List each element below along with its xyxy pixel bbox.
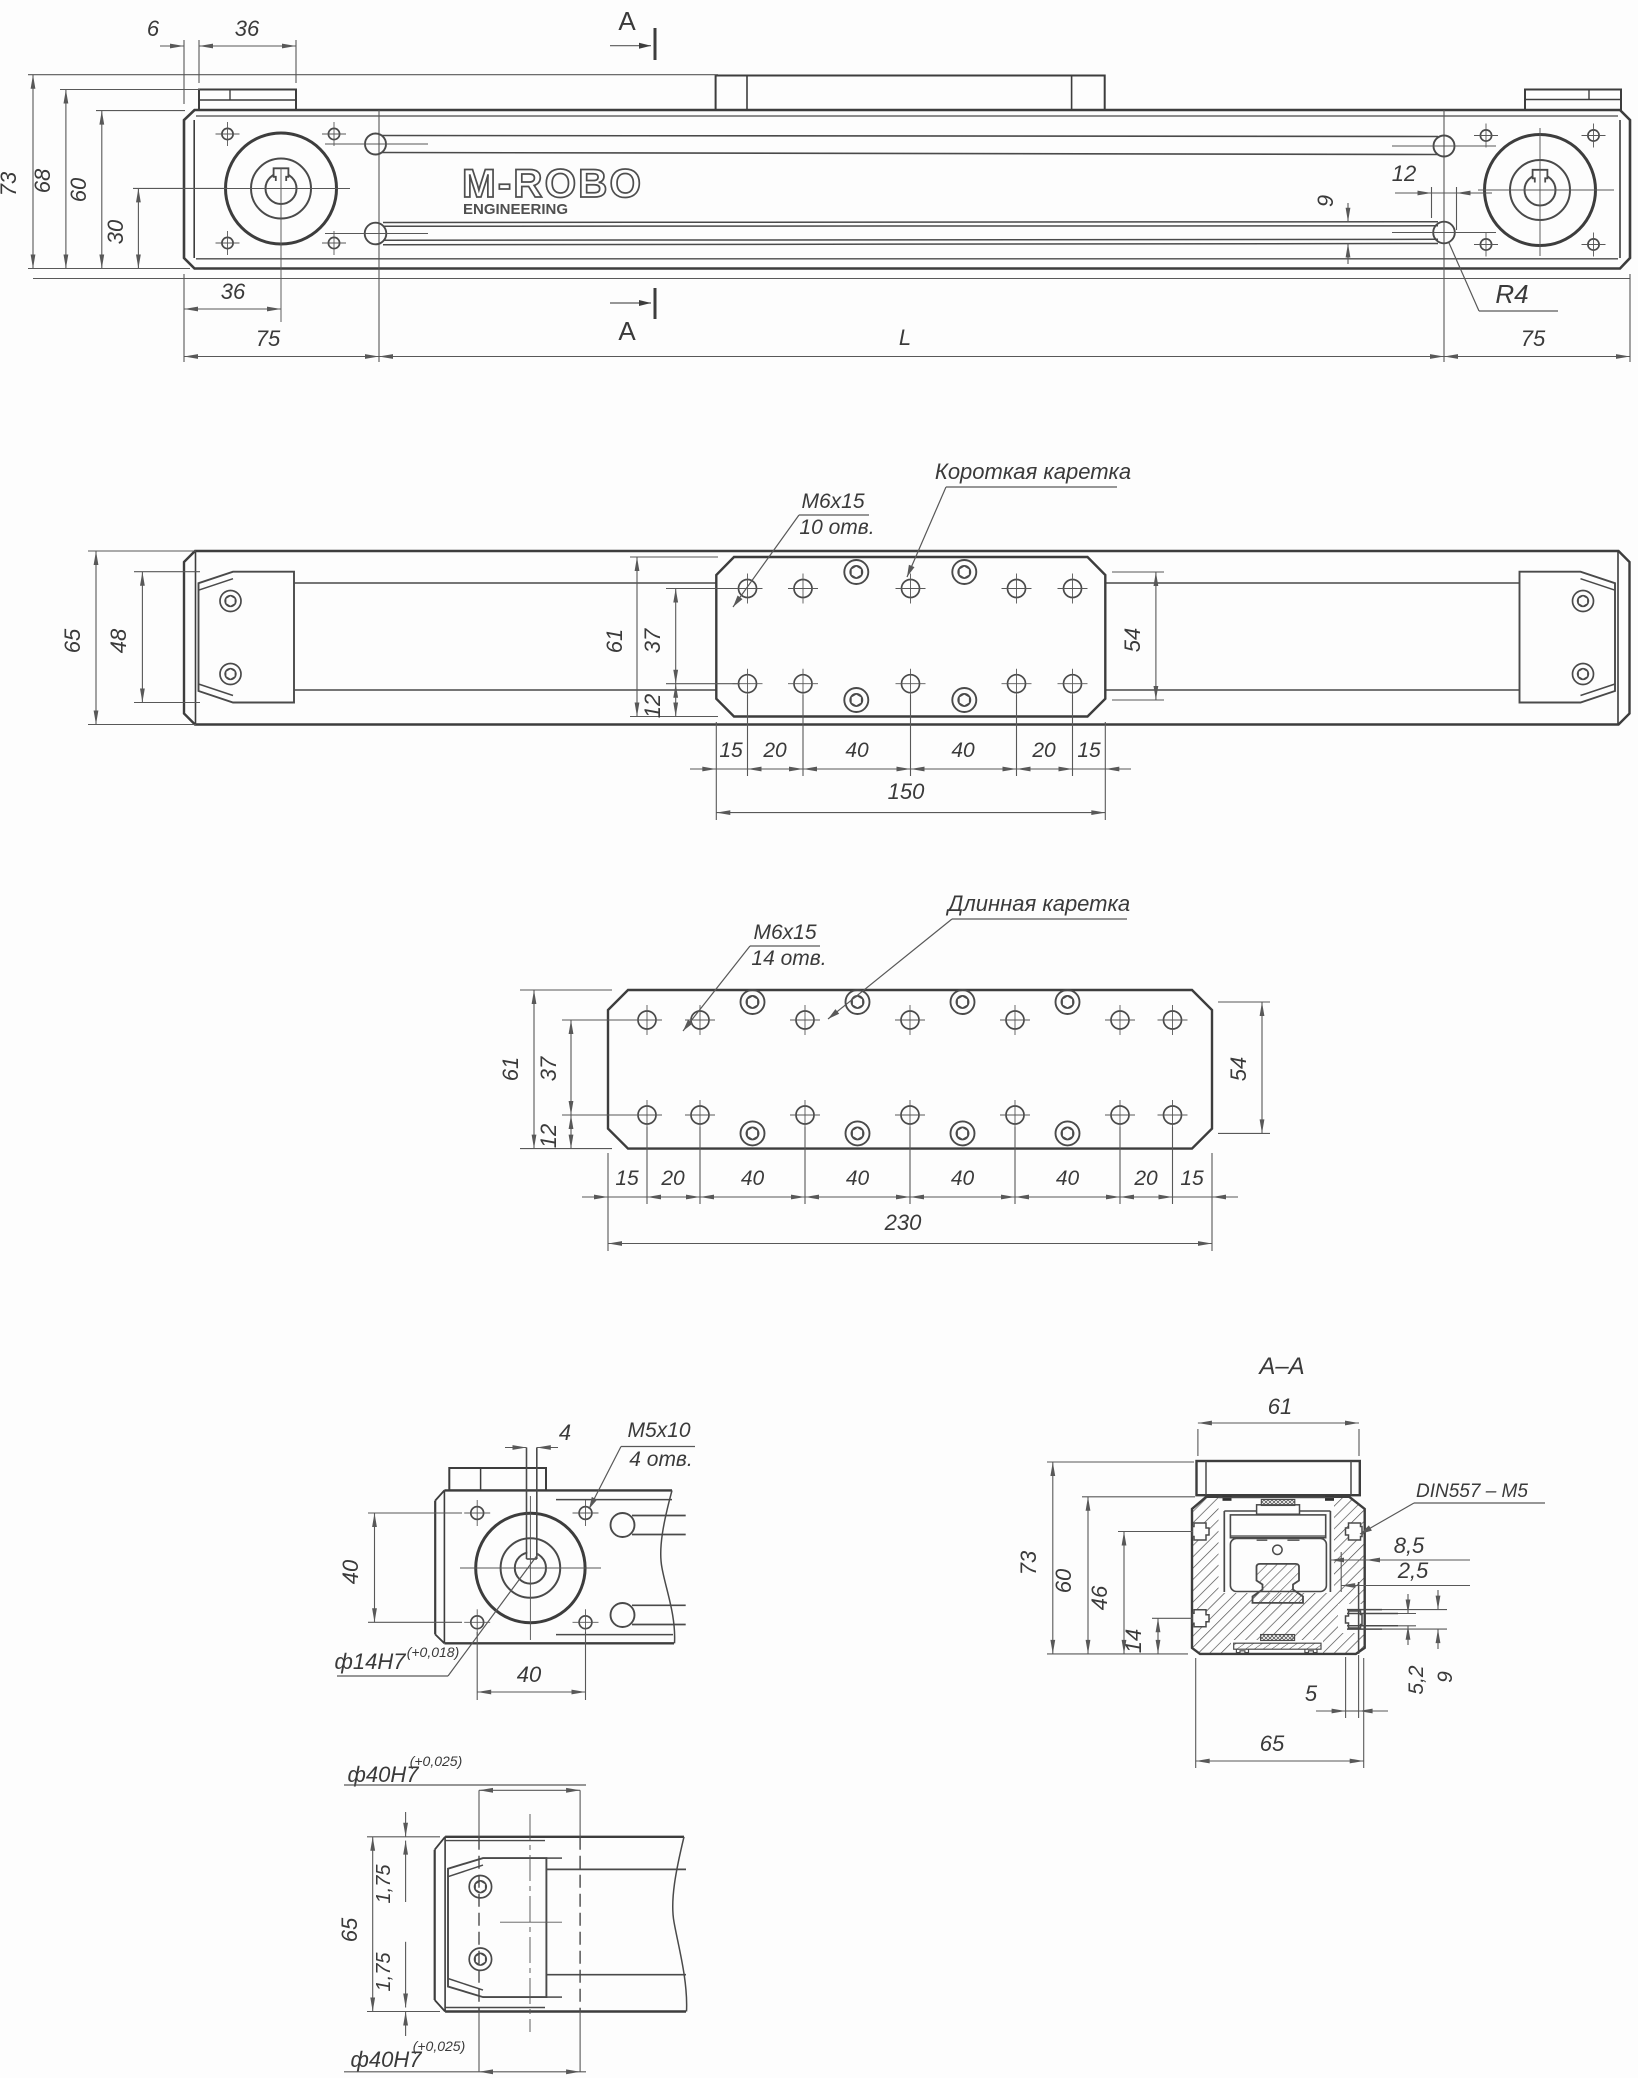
svg-text:37: 37 <box>640 628 665 653</box>
svg-text:(+0,025): (+0,025) <box>413 2038 466 2054</box>
svg-text:60: 60 <box>1051 1568 1076 1593</box>
svg-text:40: 40 <box>338 1559 363 1584</box>
svg-text:А–А: А–А <box>1257 1353 1304 1380</box>
svg-text:40: 40 <box>741 1167 765 1190</box>
svg-text:12: 12 <box>640 694 665 718</box>
svg-text:54: 54 <box>1226 1057 1251 1081</box>
svg-text:60: 60 <box>66 177 91 202</box>
svg-text:40: 40 <box>1056 1167 1080 1190</box>
svg-text:Длинная каретка: Длинная каретка <box>945 891 1130 916</box>
svg-text:150: 150 <box>888 779 925 804</box>
svg-text:15: 15 <box>1077 739 1101 762</box>
svg-text:46: 46 <box>1087 1585 1112 1610</box>
svg-text:4: 4 <box>559 1420 571 1445</box>
svg-text:54: 54 <box>1120 628 1145 652</box>
svg-text:5: 5 <box>1305 1681 1318 1706</box>
svg-text:73: 73 <box>0 171 21 196</box>
svg-text:9: 9 <box>1434 1671 1457 1683</box>
svg-text:14 отв.: 14 отв. <box>751 947 826 970</box>
svg-text:14: 14 <box>1121 1629 1146 1653</box>
svg-text:8,5: 8,5 <box>1394 1533 1425 1558</box>
svg-text:40: 40 <box>846 1167 870 1190</box>
svg-text:40: 40 <box>845 739 869 762</box>
svg-text:6: 6 <box>147 16 160 41</box>
svg-text:61: 61 <box>1268 1394 1292 1419</box>
svg-text:1,75: 1,75 <box>373 1864 395 1904</box>
svg-text:ф14Н7: ф14Н7 <box>335 1649 407 1674</box>
svg-text:DIN557 – М5: DIN557 – М5 <box>1416 1481 1528 1502</box>
svg-text:30: 30 <box>103 219 128 244</box>
svg-text:15: 15 <box>615 1167 639 1190</box>
svg-text:40: 40 <box>951 739 975 762</box>
svg-text:М6х15: М6х15 <box>753 921 816 944</box>
svg-text:10 отв.: 10 отв. <box>799 516 874 539</box>
svg-text:Короткая каретка: Короткая каретка <box>935 459 1131 484</box>
svg-text:12: 12 <box>536 1124 561 1148</box>
svg-text:L: L <box>899 325 911 350</box>
svg-text:75: 75 <box>1521 326 1546 351</box>
svg-text:37: 37 <box>536 1056 561 1081</box>
svg-text:1,75: 1,75 <box>373 1952 395 1992</box>
svg-text:65: 65 <box>337 1917 362 1942</box>
svg-text:20: 20 <box>1031 739 1056 762</box>
svg-text:ф40Н7: ф40Н7 <box>348 1762 420 1787</box>
svg-text:A: A <box>618 6 636 36</box>
svg-text:R4: R4 <box>1495 279 1528 309</box>
svg-text:73: 73 <box>1016 1550 1041 1575</box>
svg-text:5,2: 5,2 <box>1405 1665 1428 1695</box>
svg-text:M-ROBO: M-ROBO <box>462 162 643 206</box>
svg-text:20: 20 <box>660 1167 685 1190</box>
svg-text:48: 48 <box>106 628 131 653</box>
svg-text:61: 61 <box>602 629 627 653</box>
svg-text:ф40Н7: ф40Н7 <box>351 2047 423 2072</box>
svg-text:ENGINEERING: ENGINEERING <box>463 201 568 218</box>
svg-text:61: 61 <box>498 1057 523 1081</box>
svg-text:(+0,018): (+0,018) <box>407 1644 460 1660</box>
svg-text:36: 36 <box>235 16 260 41</box>
svg-text:М5х10: М5х10 <box>627 1419 690 1442</box>
svg-text:12: 12 <box>1392 161 1416 186</box>
svg-text:65: 65 <box>60 628 85 653</box>
svg-text:68: 68 <box>30 168 55 193</box>
svg-text:(+0,025): (+0,025) <box>410 1753 463 1769</box>
svg-text:230: 230 <box>884 1210 922 1235</box>
svg-text:A: A <box>618 316 636 346</box>
svg-text:40: 40 <box>517 1662 542 1687</box>
svg-text:20: 20 <box>1133 1167 1158 1190</box>
svg-text:2,5: 2,5 <box>1397 1558 1429 1583</box>
svg-text:15: 15 <box>719 739 743 762</box>
svg-text:40: 40 <box>951 1167 975 1190</box>
svg-text:15: 15 <box>1180 1167 1204 1190</box>
svg-text:9: 9 <box>1313 195 1338 207</box>
svg-text:65: 65 <box>1260 1731 1285 1756</box>
svg-text:М6х15: М6х15 <box>801 490 864 513</box>
svg-text:75: 75 <box>256 326 281 351</box>
svg-text:4 отв.: 4 отв. <box>629 1448 692 1471</box>
svg-text:36: 36 <box>221 279 246 304</box>
svg-text:20: 20 <box>762 739 787 762</box>
